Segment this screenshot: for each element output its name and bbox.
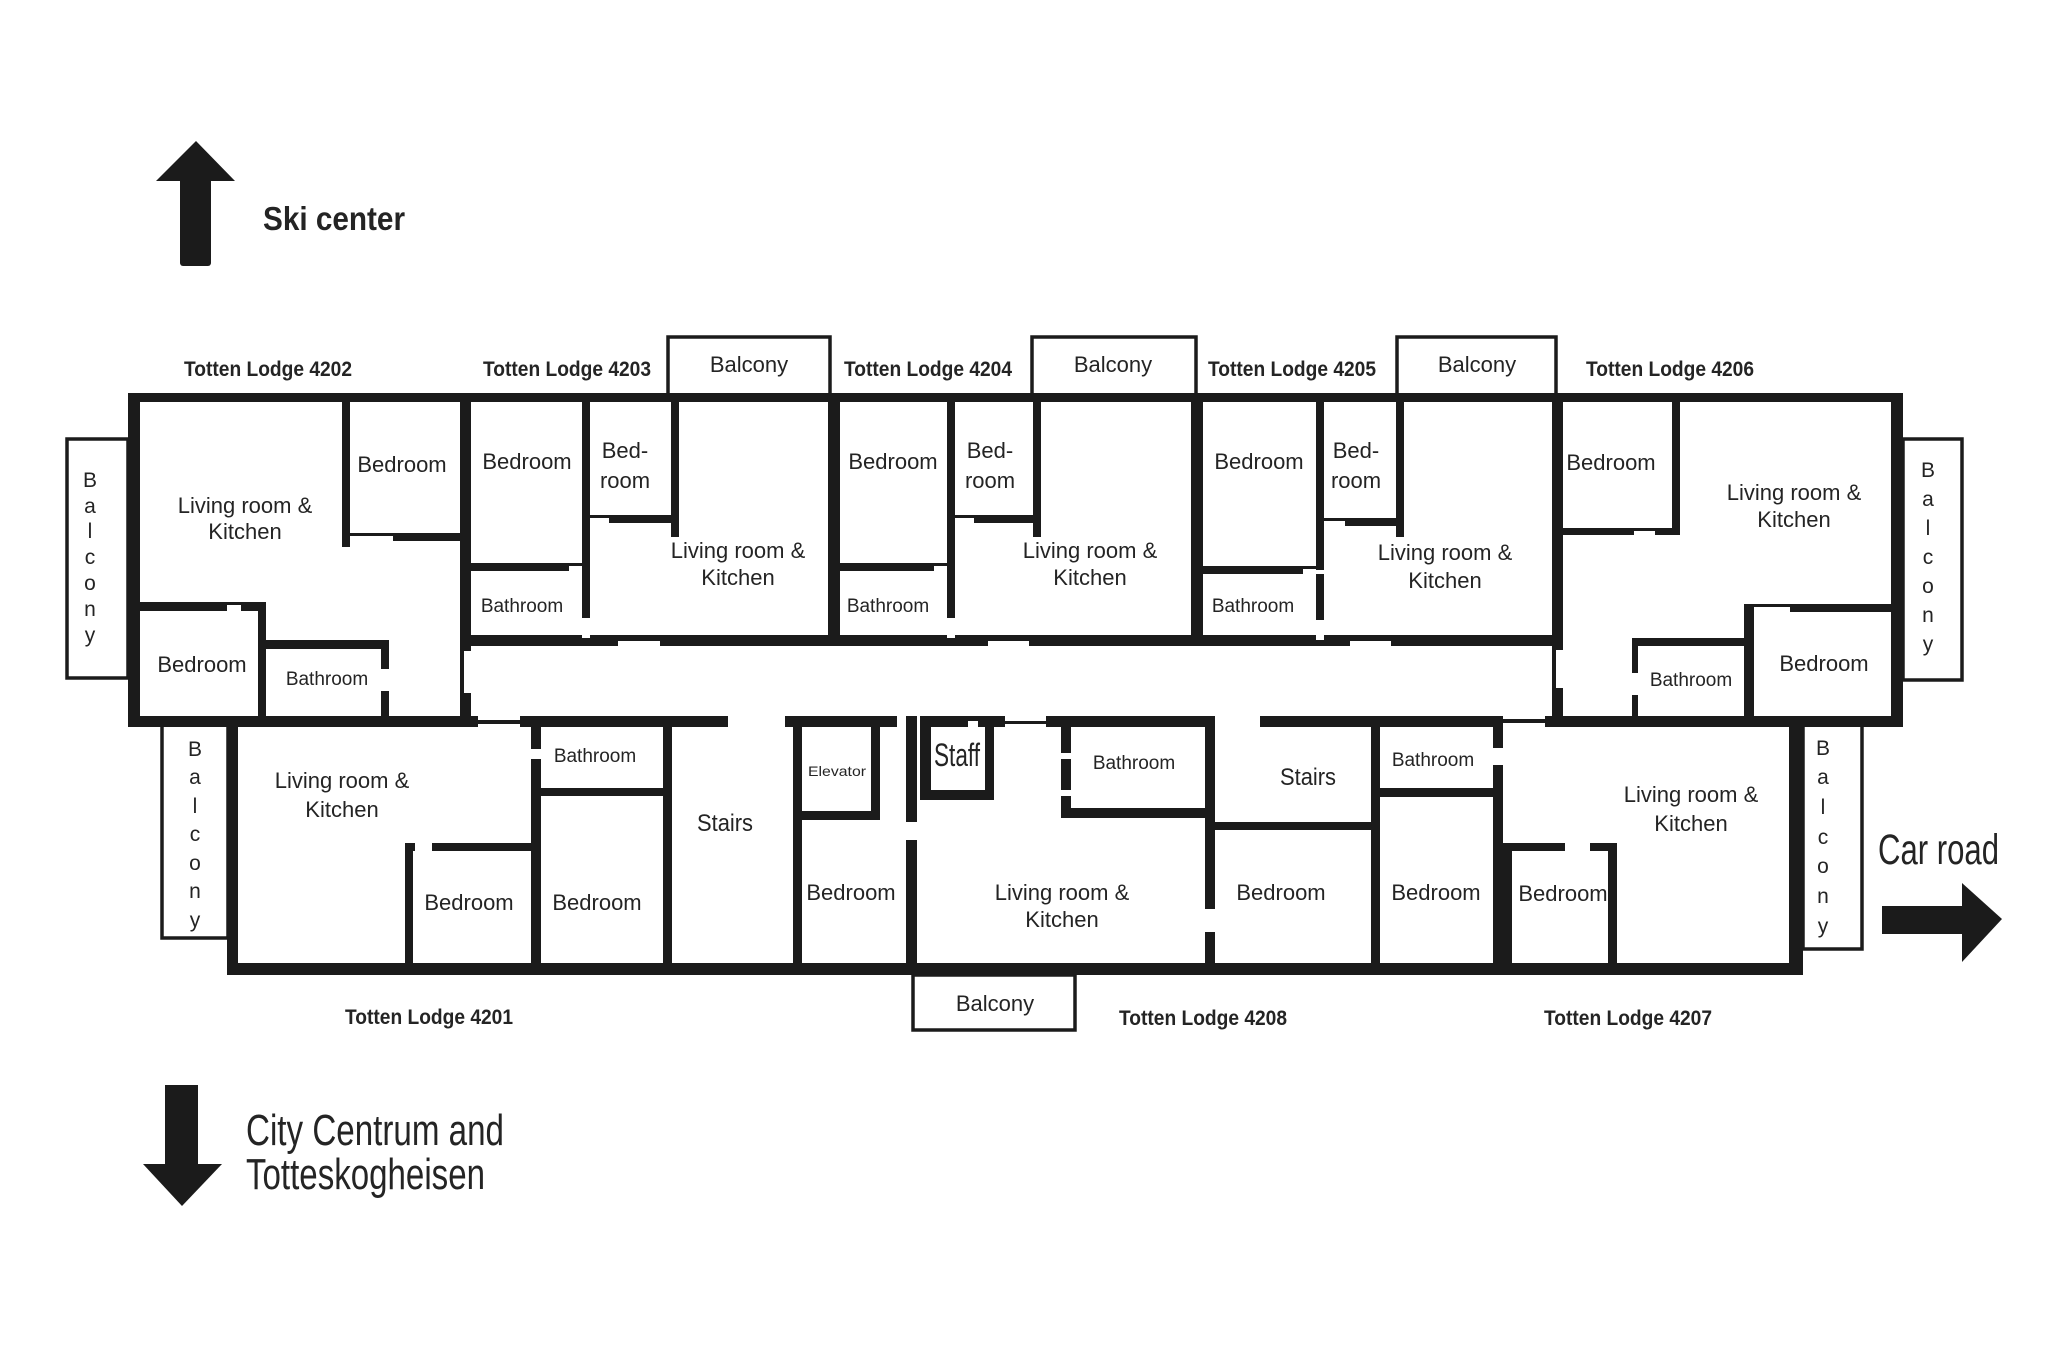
svg-text:Kitchen: Kitchen xyxy=(305,797,378,822)
svg-text:room: room xyxy=(1331,468,1381,493)
svg-text:Kitchen: Kitchen xyxy=(701,565,774,590)
svg-text:Totten Lodge 4201: Totten Lodge 4201 xyxy=(345,1006,513,1029)
svg-text:Balcony: Balcony xyxy=(956,991,1034,1016)
svg-text:Bathroom: Bathroom xyxy=(1650,670,1732,691)
svg-text:Totten Lodge 4205: Totten Lodge 4205 xyxy=(1208,358,1376,381)
svg-text:Bedroom: Bedroom xyxy=(1779,651,1868,676)
svg-text:Kitchen: Kitchen xyxy=(1757,507,1830,532)
svg-text:Bed-: Bed- xyxy=(967,438,1013,463)
svg-text:Kitchen: Kitchen xyxy=(208,519,281,544)
svg-text:Stairs: Stairs xyxy=(1280,764,1336,791)
svg-text:Stairs: Stairs xyxy=(697,810,753,837)
svg-text:Car road: Car road xyxy=(1878,826,1999,874)
svg-text:Elevator: Elevator xyxy=(808,763,866,779)
svg-text:Living room &: Living room & xyxy=(671,538,806,563)
svg-text:Bedroom: Bedroom xyxy=(357,452,446,477)
svg-text:Bed-: Bed- xyxy=(1333,438,1379,463)
svg-text:Bathroom: Bathroom xyxy=(1392,750,1474,771)
svg-text:City Centrum and: City Centrum and xyxy=(246,1106,504,1155)
svg-text:Balcony: Balcony xyxy=(1438,352,1516,377)
svg-text:Bedroom: Bedroom xyxy=(1236,880,1325,905)
svg-text:room: room xyxy=(600,468,650,493)
svg-text:Bedroom: Bedroom xyxy=(806,880,895,905)
svg-text:Totten Lodge 4206: Totten Lodge 4206 xyxy=(1586,358,1754,381)
svg-text:Totten Lodge 4208: Totten Lodge 4208 xyxy=(1119,1007,1287,1030)
svg-text:Living room &: Living room & xyxy=(275,768,410,793)
svg-text:Bedroom: Bedroom xyxy=(157,652,246,677)
svg-text:Living room &: Living room & xyxy=(1727,480,1862,505)
svg-text:room: room xyxy=(965,468,1015,493)
svg-text:Bathroom: Bathroom xyxy=(1212,596,1294,617)
svg-text:Balcony: Balcony xyxy=(1816,737,1830,938)
svg-text:Bedroom: Bedroom xyxy=(1566,450,1655,475)
svg-text:Balcony: Balcony xyxy=(1074,352,1152,377)
svg-text:Bathroom: Bathroom xyxy=(847,596,929,617)
svg-text:Bathroom: Bathroom xyxy=(1093,753,1175,774)
svg-text:Bedroom: Bedroom xyxy=(482,449,571,474)
svg-text:Bedroom: Bedroom xyxy=(1214,449,1303,474)
svg-text:Kitchen: Kitchen xyxy=(1025,907,1098,932)
svg-text:Kitchen: Kitchen xyxy=(1053,565,1126,590)
svg-text:Balcony: Balcony xyxy=(710,352,788,377)
svg-text:Balcony: Balcony xyxy=(188,738,202,932)
svg-text:Bathroom: Bathroom xyxy=(554,746,636,767)
svg-text:Totten Lodge 4203: Totten Lodge 4203 xyxy=(483,358,651,381)
svg-text:Kitchen: Kitchen xyxy=(1408,568,1481,593)
svg-text:Totten Lodge 4204: Totten Lodge 4204 xyxy=(844,358,1012,381)
svg-text:Balcony: Balcony xyxy=(1921,459,1935,656)
svg-text:Balcony: Balcony xyxy=(83,469,97,647)
svg-text:Bedroom: Bedroom xyxy=(552,890,641,915)
svg-text:Totten Lodge 4202: Totten Lodge 4202 xyxy=(184,358,352,381)
svg-text:Bedroom: Bedroom xyxy=(424,890,513,915)
svg-text:Totten Lodge 4207: Totten Lodge 4207 xyxy=(1544,1007,1712,1030)
svg-text:Bathroom: Bathroom xyxy=(481,596,563,617)
svg-text:Bathroom: Bathroom xyxy=(286,669,368,690)
svg-text:Totteskogheisen: Totteskogheisen xyxy=(246,1150,485,1199)
svg-text:Living room &: Living room & xyxy=(1624,782,1759,807)
svg-text:Living room &: Living room & xyxy=(995,880,1130,905)
svg-text:Living room &: Living room & xyxy=(1023,538,1158,563)
svg-text:Ski center: Ski center xyxy=(263,200,405,237)
svg-text:Bedroom: Bedroom xyxy=(848,449,937,474)
svg-text:Living room &: Living room & xyxy=(1378,540,1513,565)
svg-text:Living room &: Living room & xyxy=(178,493,313,518)
svg-text:Staff: Staff xyxy=(934,737,980,773)
svg-text:Bed-: Bed- xyxy=(602,438,648,463)
svg-text:Bedroom: Bedroom xyxy=(1391,880,1480,905)
svg-text:Bedroom: Bedroom xyxy=(1518,881,1607,906)
svg-text:Kitchen: Kitchen xyxy=(1654,811,1727,836)
